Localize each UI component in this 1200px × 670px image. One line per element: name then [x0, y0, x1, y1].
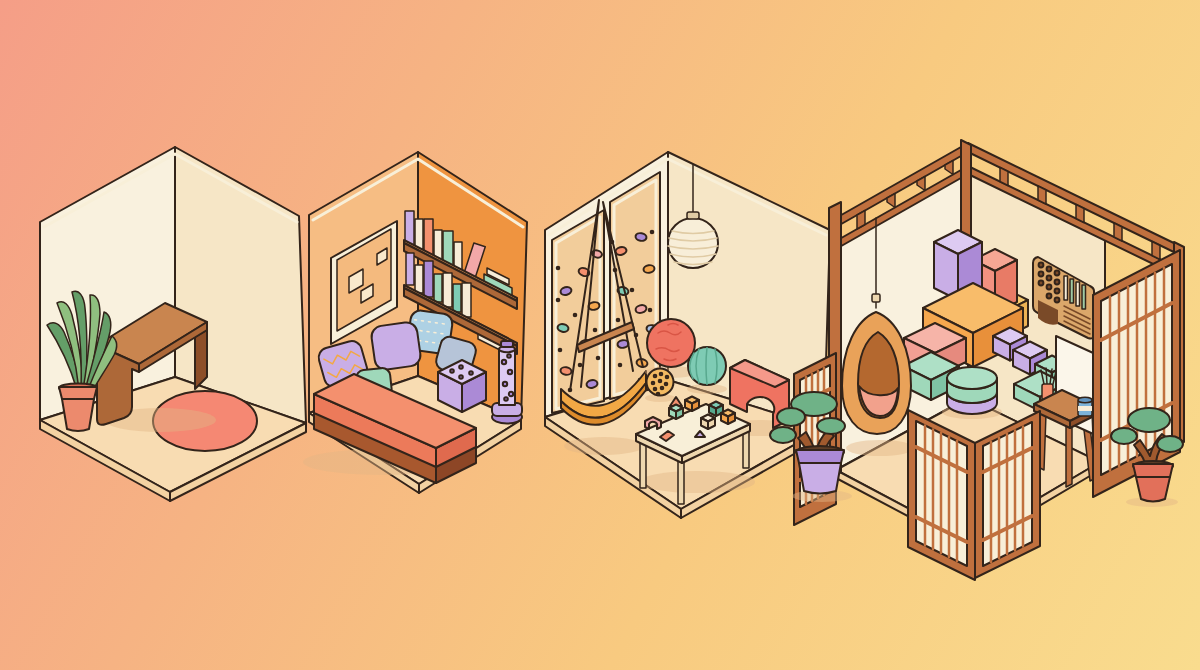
paint-jar [1078, 397, 1092, 416]
isometric-rooms-illustration [0, 0, 1200, 670]
bonsai-pot [1133, 464, 1173, 477]
bonsai-pot [796, 450, 844, 463]
plant-pot [59, 387, 97, 399]
room-zen-studio [794, 140, 1184, 580]
pillow-lavender [370, 321, 422, 371]
tufted-pouf [438, 360, 486, 412]
room-reading-nook [303, 152, 527, 493]
room-minimal [40, 147, 306, 501]
room-play [545, 152, 830, 518]
cylinder-pouf [942, 367, 1002, 419]
right-shoji-screen [1093, 250, 1180, 497]
